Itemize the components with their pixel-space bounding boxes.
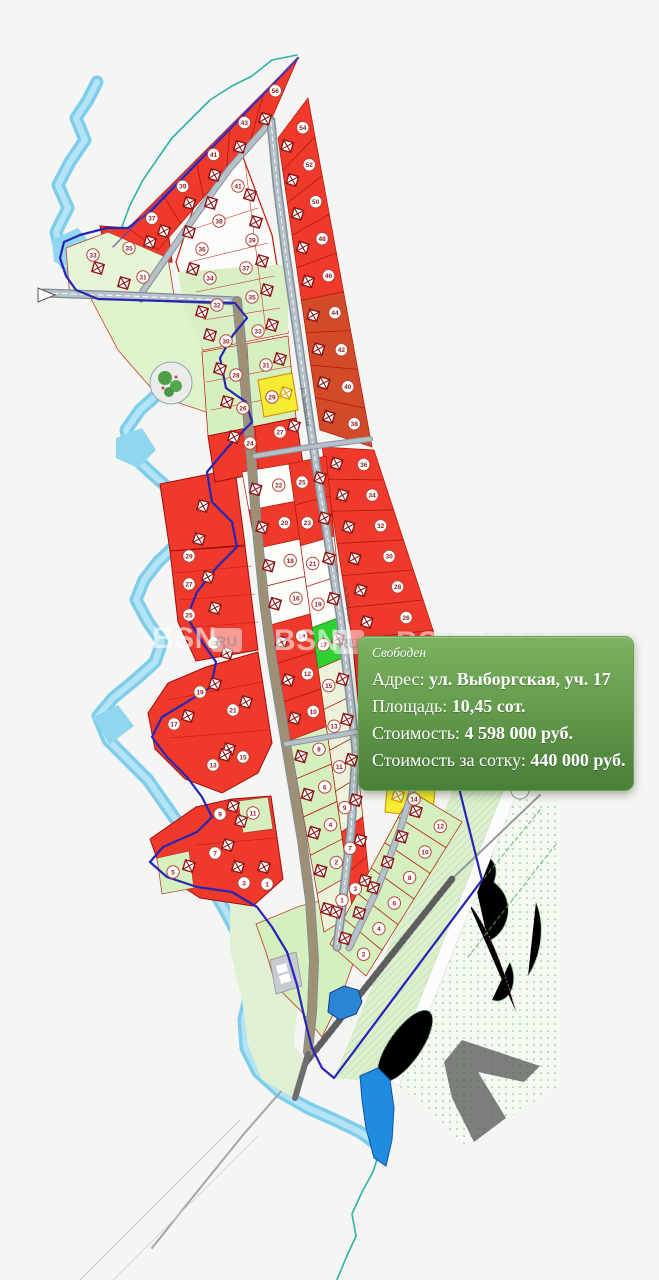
plot-number-label: 11: [336, 764, 343, 771]
sold-plot-icon: [301, 788, 313, 800]
sold-plot-icon: [295, 750, 307, 762]
sold-plot-icon: [345, 754, 357, 766]
bound-shape: [328, 986, 362, 1020]
sold-plot-icon: [214, 363, 226, 375]
sold-plot-icon: [312, 343, 324, 355]
plot-number-label: 8: [317, 747, 321, 754]
sold-plot-icon: [258, 861, 270, 873]
plot-number-label: 3: [242, 880, 246, 887]
plot-number-label: 24: [246, 440, 254, 447]
plot-number-label: 30: [386, 554, 394, 561]
plot-number-label: 19: [196, 689, 204, 696]
plot-number-label: 39: [248, 237, 256, 244]
sold-plot-icon: [222, 839, 234, 851]
plot-number-label: 18: [287, 558, 295, 565]
tooltip-price-per-row: Стоимость за сотку: 440 000 руб.: [372, 747, 620, 774]
sold-plot-icon: [208, 169, 220, 181]
plot-number-label: 43: [241, 120, 249, 127]
plot-number-label: 13: [209, 762, 217, 769]
plot-status: Свободен: [372, 645, 620, 661]
svg-text:BSN: BSN: [152, 622, 217, 655]
price-per-label: Стоимость за сотку:: [372, 750, 526, 770]
plot-number-label: 2: [362, 952, 366, 959]
cells-shape: [162, 387, 165, 390]
sold-plot-icon: [92, 262, 104, 274]
sold-plot-icon: [144, 236, 156, 248]
sold-plot-icon: [209, 602, 221, 614]
sold-plot-icon: [355, 584, 367, 596]
sold-plot-icon: [354, 834, 366, 846]
master-plan-page: 5643413937545250484644424038363432302826…: [0, 0, 659, 1280]
svg-text:RU: RU: [216, 634, 238, 651]
plot-number-label: 23: [304, 520, 312, 527]
address-label: Адрес:: [372, 669, 425, 689]
sold-plot-icon: [327, 593, 339, 605]
sold-plot-icon: [234, 141, 246, 153]
sold-plot-icon: [330, 457, 342, 469]
sold-plot-icon: [381, 856, 393, 868]
sold-plot-icon: [280, 387, 292, 399]
plot-number-label: 13: [330, 723, 338, 730]
sold-plot-icon: [353, 907, 365, 919]
sold-plot-icon: [262, 559, 274, 571]
plot-number-label: 56: [272, 88, 280, 95]
plot-number-label: 36: [198, 246, 206, 253]
plot-number-label: 38: [351, 421, 359, 428]
plot-number-label: 27: [185, 581, 193, 588]
plot-number-label: 21: [229, 707, 237, 714]
sold-plot-icon: [274, 353, 286, 365]
plot-number-label: 11: [250, 810, 257, 817]
bound-shape: [360, 1068, 394, 1166]
sold-plot-icon: [259, 113, 271, 125]
plot-number-label: 41: [234, 183, 242, 190]
cells-shape: [148, 652, 272, 793]
sold-plot-icon: [288, 420, 300, 432]
plot-number-label: 44: [331, 310, 339, 317]
sold-plot-icon: [330, 906, 342, 918]
sold-plot-icon: [240, 696, 252, 708]
plot-number-label: 28: [394, 584, 402, 591]
plot-number-label: 2: [334, 860, 338, 867]
sold-plot-icon: [318, 512, 330, 524]
sold-plot-icon: [288, 712, 300, 724]
cells-shape: [175, 376, 178, 379]
plot-number-label: 40: [344, 384, 352, 391]
sold-plot-icon: [196, 306, 208, 318]
sold-plot-icon: [410, 805, 422, 817]
plot-number-label: 37: [242, 265, 250, 272]
plot-number-label: 25: [298, 479, 306, 486]
plot-number-label: 1: [340, 897, 344, 904]
sold-plot-icon: [232, 861, 244, 873]
cells-layer[interactable]: [66, 58, 462, 1037]
plot-number-label: 26: [402, 615, 410, 622]
plot-number-label: 21: [309, 561, 317, 568]
plot-number-label: 7: [348, 846, 352, 853]
plot-number-label: 36: [360, 462, 368, 469]
sold-plot-icon: [281, 140, 293, 152]
plot-number-label: 17: [170, 721, 178, 728]
plot-number-label: 34: [206, 275, 214, 282]
sold-plot-icon: [118, 277, 130, 289]
sold-plot-icon: [392, 790, 404, 802]
sold-plot-icon: [204, 329, 216, 341]
plot-number-label: 10: [421, 849, 429, 856]
area-label: Площадь:: [372, 696, 447, 716]
plot-number-label: 15: [325, 683, 333, 690]
sold-plot-icon: [367, 881, 379, 893]
plot-number-label: 9: [343, 805, 347, 812]
sold-plot-icon: [307, 309, 319, 321]
sold-plot-icon: [183, 197, 195, 209]
tooltip-address-row: Адрес: ул. Выборгская, уч. 17: [372, 666, 620, 693]
sold-plot-icon: [339, 932, 351, 944]
plot-number-label: 30: [222, 338, 230, 345]
sold-plot-icon: [297, 241, 309, 253]
plot-number-label: 48: [318, 236, 326, 243]
sold-plot-icon: [302, 275, 314, 287]
sold-plot-icon: [336, 673, 348, 685]
plot-number-label: 31: [262, 362, 270, 369]
sold-plot-icon: [183, 226, 195, 238]
sold-plot-icon: [209, 678, 221, 690]
plot-number-label: 28: [232, 372, 240, 379]
plot-number-label: 29: [268, 394, 276, 401]
price-label: Стоимость:: [372, 723, 460, 743]
price-per-value: 440 000 руб.: [530, 750, 625, 770]
sold-plot-icon: [341, 713, 353, 725]
sold-plot-icon: [182, 710, 194, 722]
plot-number-label: 32: [377, 523, 385, 530]
plot-number-label: 34: [369, 492, 377, 499]
tooltip-area-row: Площадь: 10,45 сот.: [372, 693, 620, 720]
sold-plot-icon: [396, 831, 408, 843]
price-value: 4 598 000 руб.: [464, 723, 573, 743]
plot-number-label: 3: [354, 886, 358, 893]
terrain-shape: [78, 1120, 240, 1280]
sold-plot-icon: [187, 263, 199, 275]
sold-plot-icon: [249, 483, 261, 495]
sold-plot-icon: [314, 472, 326, 484]
sold-plot-icon: [256, 521, 268, 533]
plot-number-label: 6: [323, 784, 327, 791]
plot-number-label: 9: [218, 811, 222, 818]
sold-plot-icon: [227, 800, 239, 812]
plot-number-label: 4: [329, 822, 333, 829]
sold-plot-icon: [282, 674, 294, 686]
sold-plot-icon: [308, 826, 320, 838]
plot-number-label: 16: [292, 596, 300, 603]
plot-number-label: 4: [377, 926, 381, 933]
plot-number-label: 20: [281, 520, 289, 527]
sold-plot-icon: [336, 489, 348, 501]
sold-plot-icon: [342, 521, 354, 533]
sold-plot-icon: [266, 319, 278, 331]
plot-number-label: 41: [210, 152, 218, 159]
plot-number-label: 31: [139, 274, 147, 281]
sold-plot-icon: [256, 255, 268, 267]
sold-plot-icon: [286, 174, 298, 186]
area-value: 10,45 сот.: [452, 696, 526, 716]
sold-plot-icon: [202, 571, 214, 583]
plot-number-label: 29: [185, 553, 193, 560]
plot-number-label: 54: [299, 125, 307, 132]
plot-number-label: 1: [265, 881, 269, 888]
plot-number-label: 22: [275, 482, 283, 489]
sold-plot-icon: [193, 533, 205, 545]
sold-plot-icon: [221, 396, 233, 408]
plot-number-label: 37: [148, 216, 156, 223]
cells-shape: [158, 371, 172, 385]
plot-cell-30[interactable]: [337, 540, 413, 576]
plot-number-label: 12: [304, 671, 312, 678]
plot-number-label: 38: [215, 218, 223, 225]
svg-text:RU: RU: [338, 636, 360, 653]
sold-plot-icon: [314, 865, 326, 877]
sold-plot-icon: [350, 794, 362, 806]
sold-plot-icon: [323, 552, 335, 564]
sold-plot-icon: [158, 225, 170, 237]
sold-plot-icon: [197, 500, 209, 512]
plot-number-label: 33: [89, 252, 97, 259]
sold-plot-icon: [183, 860, 195, 872]
plot-number-label: 33: [254, 328, 262, 335]
sold-plot-icon: [317, 377, 329, 389]
plot-number-label: 39: [179, 184, 187, 191]
plot-number-label: 15: [239, 754, 247, 761]
plot-number-label: 42: [338, 347, 346, 354]
sold-plot-icon: [205, 197, 217, 209]
tooltip-price-row: Стоимость: 4 598 000 руб.: [372, 720, 620, 747]
sold-plot-icon: [261, 284, 273, 296]
plot-number-label: 50: [312, 199, 320, 206]
plot-number-label: 7: [213, 850, 217, 857]
plot-number-label: 27: [276, 429, 284, 436]
sold-plot-icon: [291, 208, 303, 220]
plot-number-label: 19: [314, 601, 322, 608]
cells-shape: [164, 387, 174, 397]
plot-number-label: 52: [306, 162, 314, 169]
plot-tooltip: Свободен Адрес: ул. Выборгская, уч. 17 П…: [358, 636, 634, 791]
address-value: ул. Выборгская, уч. 17: [429, 669, 611, 689]
sold-plot-icon: [235, 815, 247, 827]
plot-number-label: 6: [392, 900, 396, 907]
plot-number-label: 35: [248, 294, 256, 301]
sold-plot-icon: [361, 616, 373, 628]
terrain-shape: [152, 1066, 303, 1248]
sold-plot-icon: [250, 216, 262, 228]
plot-number-label: 14: [410, 796, 418, 803]
plot-number-label: 8: [408, 875, 412, 882]
sold-plot-icon: [323, 411, 335, 423]
sold-plot-icon: [219, 749, 231, 761]
plot-number-label: 32: [213, 302, 221, 309]
plot-number-label: 10: [310, 709, 318, 716]
sold-plot-icon: [269, 598, 281, 610]
plot-number-label: 12: [437, 824, 445, 831]
plot-number-label: 25: [185, 612, 193, 619]
plot-number-label: 46: [325, 273, 333, 280]
plot-number-label: 26: [239, 405, 247, 412]
sold-plot-icon: [348, 552, 360, 564]
plot-number-label: 35: [125, 245, 133, 252]
sold-plot-icon: [244, 189, 256, 201]
sold-plot-icon: [228, 431, 240, 443]
river-shape: [336, 1150, 380, 1280]
svg-text:BSN: BSN: [274, 624, 339, 657]
plot-number-label: 5: [171, 869, 175, 876]
